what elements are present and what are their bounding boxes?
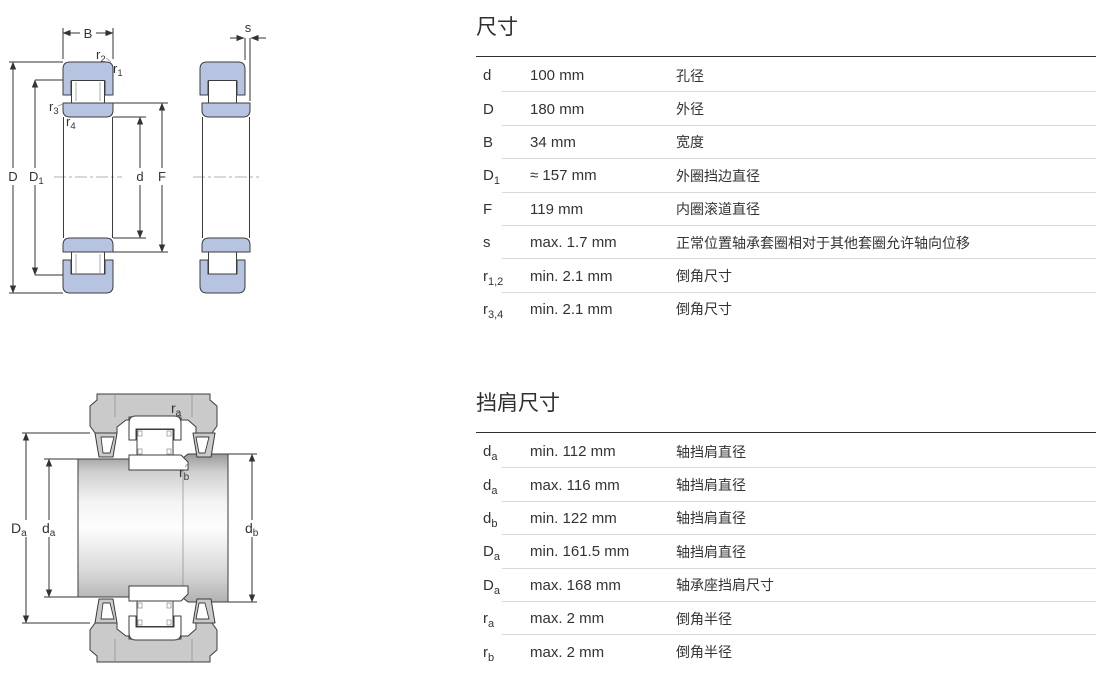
dimension-description: 轴挡肩直径	[676, 442, 1096, 462]
dimension-symbol: B	[476, 134, 530, 151]
table-row: B 34 mm 宽度	[476, 126, 1096, 159]
dimension-description: 倒角半径	[676, 642, 1096, 662]
label-s: s	[245, 20, 252, 35]
dimension-symbol: da	[476, 477, 530, 494]
table-row: r1,2 min. 2.1 mm 倒角尺寸	[476, 259, 1096, 292]
dimension-value: max. 1.7 mm	[530, 234, 676, 251]
dimension-value: min. 2.1 mm	[530, 268, 676, 285]
inner-ring-flange-top	[63, 103, 113, 117]
dimension-value: min. 122 mm	[530, 510, 676, 527]
dimension-value: 180 mm	[530, 101, 676, 118]
mounted-bearing-bottom	[129, 586, 188, 640]
dimension-symbol: D1	[476, 167, 530, 184]
mounted-bearing-top	[129, 416, 188, 470]
dimension-symbol: da	[476, 443, 530, 460]
dimensions-table-title: 尺寸	[476, 13, 1096, 57]
dimension-value: min. 161.5 mm	[530, 543, 676, 560]
label-d: d	[136, 169, 143, 184]
table-row: D1 ≈ 157 mm 外圈挡边直径	[476, 159, 1096, 192]
dimension-symbol: r1,2	[476, 268, 530, 285]
table-row: Da max. 168 mm 轴承座挡肩尺寸	[476, 569, 1096, 602]
table-row: s max. 1.7 mm 正常位置轴承套圈相对于其他套圈允许轴向位移	[476, 226, 1096, 259]
roller-top	[72, 81, 105, 104]
dimension-description: 轴挡肩直径	[676, 475, 1096, 495]
dimension-d: d	[113, 117, 147, 238]
dimension-da: da	[39, 459, 78, 597]
dimension-symbol: db	[476, 510, 530, 527]
inner-ring-body	[64, 117, 113, 238]
dimension-description: 外圈挡边直径	[676, 166, 1096, 186]
label-r1: r1	[113, 61, 123, 79]
dimensions-table: 尺寸 d 100 mm 孔径 D 180 mm 外径 B 34 mm 宽度 D1…	[476, 13, 1096, 326]
shaft	[78, 454, 228, 602]
roller-bottom	[72, 252, 105, 275]
dimension-symbol: Da	[476, 543, 530, 560]
dimension-value: max. 2 mm	[530, 644, 676, 661]
bearing-side-view	[193, 62, 259, 293]
dimension-value: max. 2 mm	[530, 610, 676, 627]
table-row: db min. 122 mm 轴挡肩直径	[476, 502, 1096, 535]
dimension-symbol: F	[476, 201, 530, 218]
table-row: d 100 mm 孔径	[476, 59, 1096, 92]
dimension-value: 34 mm	[530, 134, 676, 151]
dimension-description: 宽度	[676, 132, 1096, 152]
dimension-description: 孔径	[676, 66, 1096, 86]
table-row: Da min. 161.5 mm 轴挡肩直径	[476, 535, 1096, 568]
page: { "colors": { "accent_blue": "#b6c3e1", …	[0, 0, 1100, 682]
roller	[137, 430, 173, 456]
table-row: ra max. 2 mm 倒角半径	[476, 602, 1096, 635]
table-row: da min. 112 mm 轴挡肩直径	[476, 435, 1096, 468]
dimension-description: 轴承座挡肩尺寸	[676, 575, 1096, 595]
dimension-description: 倒角半径	[676, 609, 1096, 629]
label-B: B	[84, 26, 93, 41]
dimension-description: 倒角尺寸	[676, 266, 1096, 286]
dimension-value: 100 mm	[530, 67, 676, 84]
bearing-cross-section-diagram: B s D D1 d F	[0, 0, 300, 310]
roller	[137, 601, 173, 627]
dimension-symbol: rb	[476, 644, 530, 661]
table-row: F 119 mm 内圈滚道直径	[476, 193, 1096, 226]
dimension-description: 轴挡肩直径	[676, 508, 1096, 528]
bearing-cross-section-svg: B s D D1 d F	[0, 0, 300, 310]
roller-top	[209, 81, 237, 104]
abutment-table-rows: da min. 112 mm 轴挡肩直径 da max. 116 mm 轴挡肩直…	[476, 433, 1096, 669]
abutment-dimensions-table: 挡肩尺寸 da min. 112 mm 轴挡肩直径 da max. 116 mm…	[476, 389, 1096, 669]
dimension-symbol: Da	[476, 577, 530, 594]
dimension-symbol: s	[476, 234, 530, 251]
dimension-symbol: r3,4	[476, 301, 530, 318]
inner-ring-flange-bottom	[63, 238, 113, 252]
table-row: rb max. 2 mm 倒角半径	[476, 635, 1096, 668]
mounting-dimensions-svg: Da da db ra rb	[0, 380, 320, 682]
label-r3: r3	[49, 99, 59, 117]
dimension-value: max. 168 mm	[530, 577, 676, 594]
inner-ring-flange-bottom	[202, 238, 250, 252]
dimension-value: min. 112 mm	[530, 443, 676, 460]
label-D: D	[8, 169, 17, 184]
dimensions-table-rows: d 100 mm 孔径 D 180 mm 外径 B 34 mm 宽度 D1 ≈ …	[476, 57, 1096, 326]
inner-ring	[129, 586, 188, 601]
dimension-value: min. 2.1 mm	[530, 301, 676, 318]
dimension-value: max. 116 mm	[530, 477, 676, 494]
bearing-front-view	[54, 62, 122, 293]
dimension-value: ≈ 157 mm	[530, 167, 676, 184]
dimension-symbol: D	[476, 101, 530, 118]
dimension-description: 轴挡肩直径	[676, 542, 1096, 562]
abutment-table-title: 挡肩尺寸	[476, 389, 1096, 433]
table-row: da max. 116 mm 轴挡肩直径	[476, 468, 1096, 501]
inner-ring-flange-top	[202, 103, 250, 117]
dimension-description: 正常位置轴承套圈相对于其他套圈允许轴向位移	[676, 233, 1096, 253]
dimension-symbol: d	[476, 67, 530, 84]
table-row: D 180 mm 外径	[476, 92, 1096, 125]
mounting-dimensions-diagram: Da da db ra rb	[0, 380, 320, 682]
dimension-value: 119 mm	[530, 201, 676, 218]
dimension-db: db	[228, 454, 263, 602]
dimension-description: 倒角尺寸	[676, 299, 1096, 319]
roller-bottom	[209, 252, 237, 275]
dimension-description: 外径	[676, 99, 1096, 119]
dimension-description: 内圈滚道直径	[676, 199, 1096, 219]
table-row: r3,4 min. 2.1 mm 倒角尺寸	[476, 293, 1096, 326]
dimension-symbol: ra	[476, 610, 530, 627]
label-F: F	[158, 169, 166, 184]
